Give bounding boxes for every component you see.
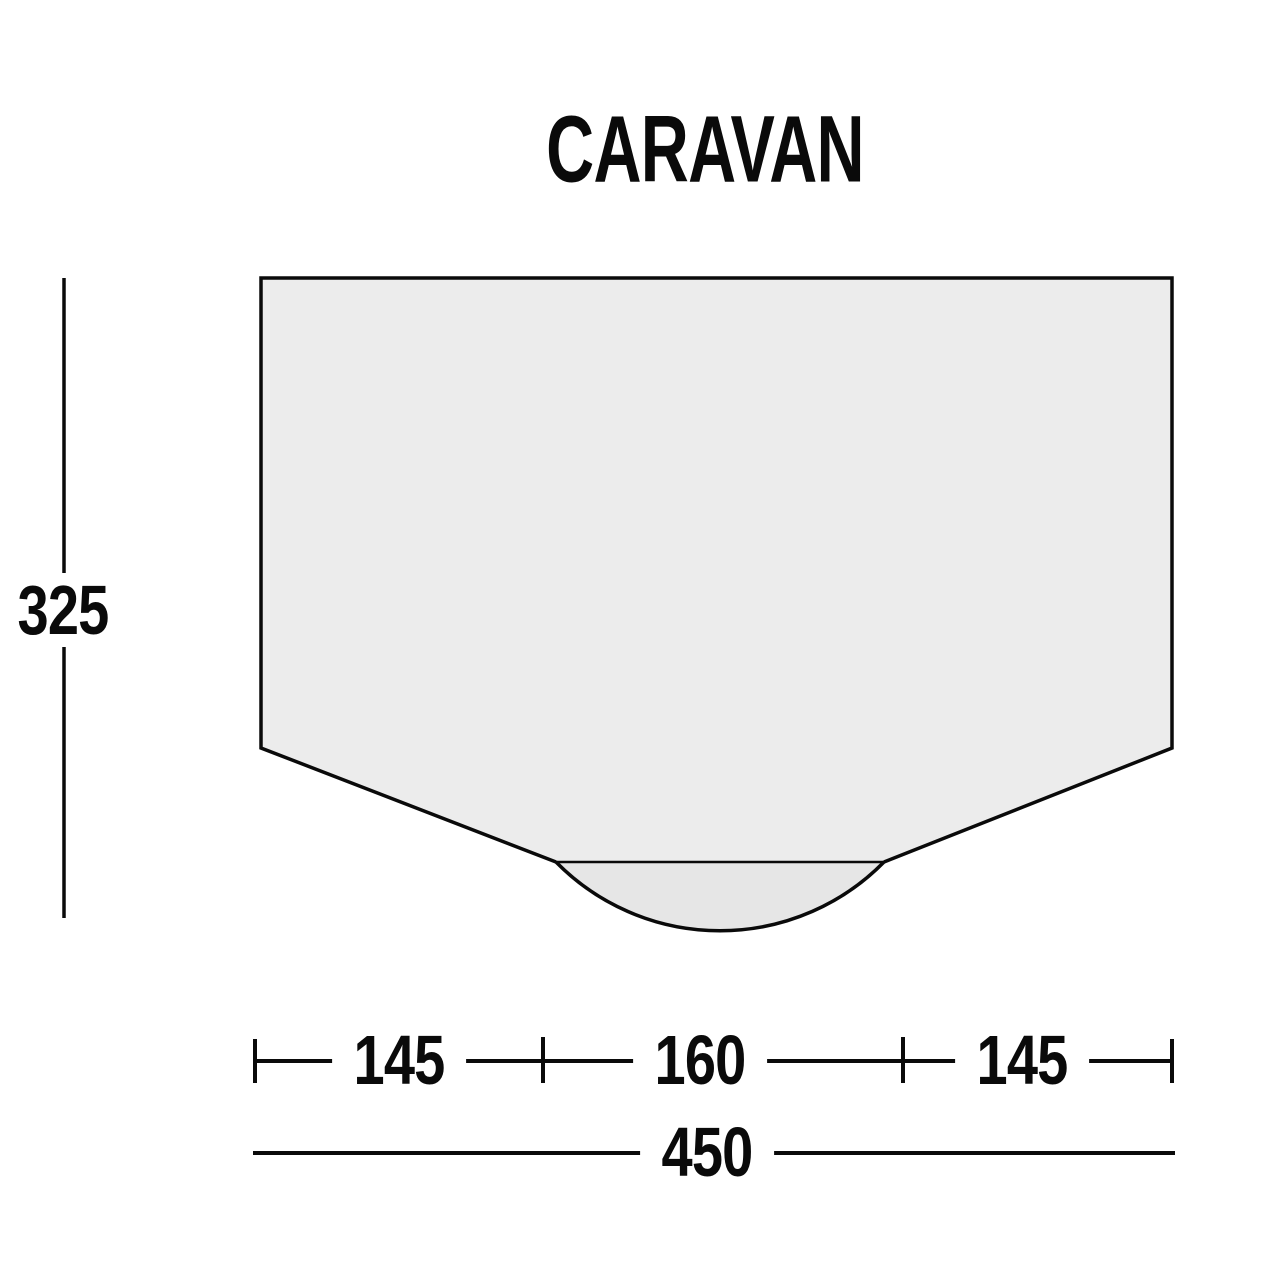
height-dimension-label: 325 xyxy=(0,573,130,647)
porch-bump-shape xyxy=(556,862,884,931)
caravan-body-shape xyxy=(261,278,1172,862)
total-width-dimension-label: 450 xyxy=(640,1115,774,1189)
caravan-dimension-diagram: CARAVAN 325 145 160 145 450 xyxy=(0,0,1280,1280)
diagram-title: CARAVAN xyxy=(478,96,932,205)
bottom-right-dimension-label: 145 xyxy=(955,1023,1089,1097)
bottom-center-dimension-label: 160 xyxy=(633,1023,767,1097)
diagram-title-text: CARAVAN xyxy=(546,96,864,205)
bottom-left-dimension-label: 145 xyxy=(332,1023,466,1097)
